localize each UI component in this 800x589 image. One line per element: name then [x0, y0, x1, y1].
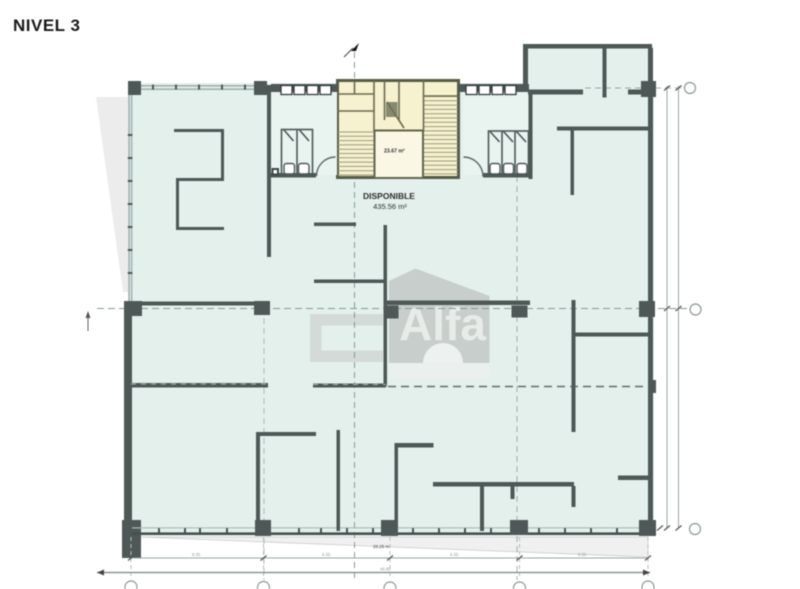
svg-text:28.25 m: 28.25 m	[373, 544, 390, 549]
svg-text:23.67 m²: 23.67 m²	[384, 149, 405, 155]
svg-text:DISPONIBLE: DISPONIBLE	[363, 191, 415, 201]
svg-text:46.80: 46.80	[380, 567, 391, 572]
svg-text:Alfa: Alfa	[399, 298, 486, 350]
svg-text:8.35: 8.35	[192, 552, 201, 557]
svg-text:8.35: 8.35	[322, 552, 331, 557]
svg-text:NIVEL 3: NIVEL 3	[13, 16, 80, 35]
svg-text:8.35: 8.35	[450, 552, 459, 557]
svg-text:435.56 m²: 435.56 m²	[373, 202, 407, 211]
svg-text:8.35: 8.35	[578, 552, 587, 557]
